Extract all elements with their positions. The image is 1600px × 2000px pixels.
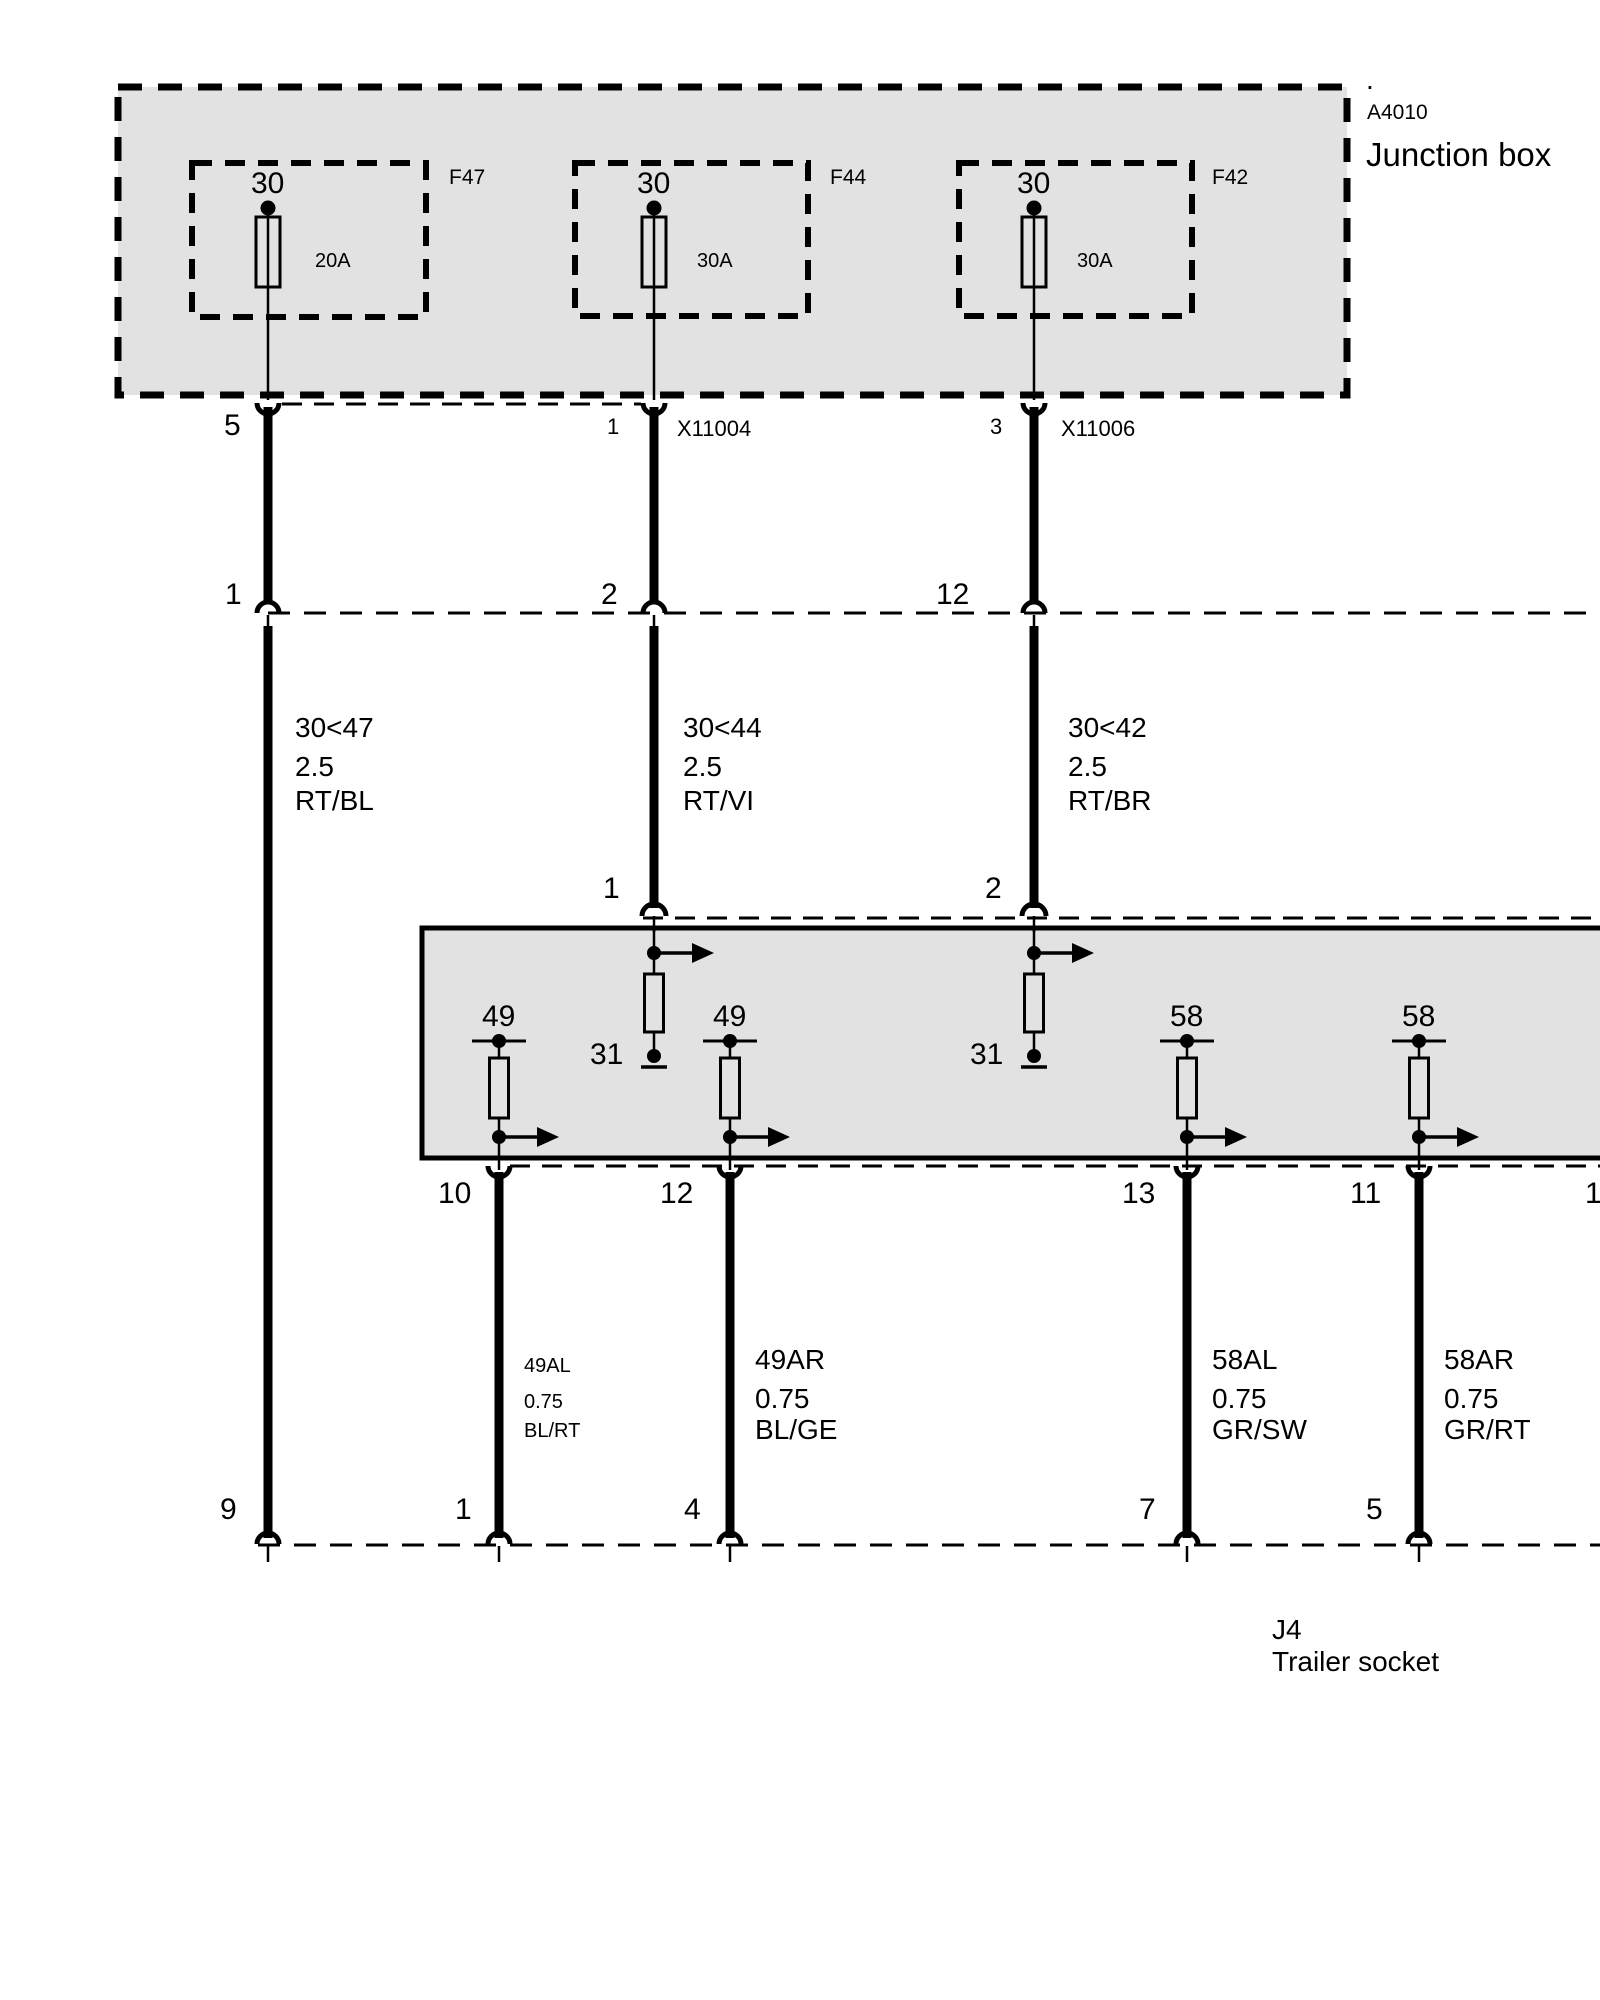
wire-label-gauge-rt-vi: 2.5 <box>683 753 722 781</box>
fuse-f47-code-label: F47 <box>449 167 485 188</box>
socket-pin-label-5: 5 <box>1366 1495 1383 1525</box>
module-input-cup-1 <box>642 904 666 916</box>
wire-label-color-rt-vi: RT/VI <box>683 787 754 815</box>
fuse-f44-code-label: F44 <box>830 167 866 188</box>
module-bottom-connector-row <box>488 1166 1600 1177</box>
mid-cup-2 <box>643 602 665 613</box>
fuse-f44-terminal-dot <box>647 201 662 216</box>
socket-cup-9 <box>257 1533 279 1544</box>
fuse-f44-terminal-label: 30 <box>637 169 670 199</box>
branch2-ground-dot <box>1027 1049 1041 1063</box>
connector-row-mid <box>257 602 1600 626</box>
socket-cup-5 <box>1408 1533 1430 1544</box>
socket-pin-label-1: 1 <box>455 1495 472 1525</box>
wire-label-color-49al: BL/RT <box>524 1421 580 1441</box>
socket-cup-7 <box>1176 1533 1198 1544</box>
module-output-pin-label-11: 11 <box>1350 1179 1381 1209</box>
wiring-diagram-canvas <box>0 0 1600 2000</box>
wire-label-gauge-58ar: 0.75 <box>1444 1385 1499 1413</box>
pin-label-5: 5 <box>224 411 241 441</box>
wire-label-gauge-rt-br: 2.5 <box>1068 753 1107 781</box>
fuse-f42-rating-label: 30A <box>1077 251 1113 271</box>
ground-terminal-label-31b: 31 <box>970 1040 1003 1070</box>
lamp-terminal-label-49r: 49 <box>713 1002 746 1032</box>
fuse-f47-rating-label: 20A <box>315 251 351 271</box>
component-id-label: A4010 <box>1367 102 1428 123</box>
wire-label-color-49ar: BL/GE <box>755 1416 837 1444</box>
mid-pin-label-2: 2 <box>601 580 618 610</box>
socket-pin-label-7: 7 <box>1139 1495 1156 1525</box>
mid-pin-label-12: 12 <box>936 580 969 610</box>
module-output-pin-label-12: 12 <box>660 1179 693 1209</box>
module-input-pin-label-2: 2 <box>985 874 1002 904</box>
wire-label-gauge-49ar: 0.75 <box>755 1385 810 1413</box>
socket-cup-1 <box>488 1533 510 1544</box>
branch1-ground-dot <box>647 1049 661 1063</box>
socket-name-label: Trailer socket <box>1272 1648 1439 1676</box>
fuse-f47-terminal-dot <box>261 201 276 216</box>
component-name-label: Junction box <box>1366 138 1551 171</box>
wire-label-color-58al: GR/SW <box>1212 1416 1307 1444</box>
fuse-f42-terminal-dot <box>1027 201 1042 216</box>
connector-x11004-label: X11004 <box>677 418 751 440</box>
trailer-module <box>422 904 1600 1170</box>
lamp-wires <box>499 1172 1419 1538</box>
wire-label-circuit-rt-bl: 30<47 <box>295 714 374 742</box>
wire-label-circuit-49ar: 49AR <box>755 1346 825 1374</box>
lamp-terminal-label-58l: 58 <box>1170 1002 1203 1032</box>
fuse-f42-code-label: F42 <box>1212 167 1248 188</box>
pin-label-1-top: 1 <box>607 416 619 438</box>
title-dot: . <box>1366 66 1374 94</box>
wire-label-circuit-rt-br: 30<42 <box>1068 714 1147 742</box>
module-output-pin-label-1x: 1 <box>1585 1179 1600 1209</box>
wire-label-color-rt-bl: RT/BL <box>295 787 374 815</box>
wire-label-color-rt-br: RT/BR <box>1068 787 1152 815</box>
module-output-pin-label-13: 13 <box>1122 1179 1155 1209</box>
module-output-pin-label-10: 10 <box>438 1179 471 1209</box>
wire-label-circuit-49al: 49AL <box>524 1356 571 1376</box>
module-input-cup-2 <box>1022 904 1046 916</box>
mid-pin-label-1: 1 <box>225 580 242 610</box>
wire-label-color-58ar: GR/RT <box>1444 1416 1531 1444</box>
fuse-f44-rating-label: 30A <box>697 251 733 271</box>
mid-cup-12 <box>1023 602 1045 613</box>
wire-label-circuit-rt-vi: 30<44 <box>683 714 762 742</box>
wire-label-circuit-58ar: 58AR <box>1444 1346 1514 1374</box>
lamp-terminal-label-58r: 58 <box>1402 1002 1435 1032</box>
junction-box <box>118 87 1347 400</box>
module-input-pin-label-1: 1 <box>603 874 620 904</box>
ground-terminal-label-31a: 31 <box>590 1040 623 1070</box>
pin-label-3: 3 <box>990 416 1002 438</box>
mid-cup-1 <box>257 602 279 613</box>
lamp-terminal-label-49l: 49 <box>482 1002 515 1032</box>
wire-label-gauge-49al: 0.75 <box>524 1392 563 1412</box>
connector-x11006-label: X11006 <box>1061 418 1135 440</box>
socket-id-label: J4 <box>1272 1616 1302 1644</box>
fuse-f42-terminal-label: 30 <box>1017 169 1050 199</box>
fuse-f47-terminal-label: 30 <box>251 169 284 199</box>
wiring-diagram-page: . A4010 Junction box 30 30 30 20A 30A 30… <box>0 0 1600 2000</box>
trailer-socket-row <box>257 1533 1600 1562</box>
socket-pin-label-9: 9 <box>220 1495 237 1525</box>
junction-box-outline <box>118 87 1347 395</box>
wire-label-circuit-58al: 58AL <box>1212 1346 1277 1374</box>
socket-pin-label-4: 4 <box>684 1495 701 1525</box>
socket-cup-4 <box>719 1533 741 1544</box>
wire-label-gauge-rt-bl: 2.5 <box>295 753 334 781</box>
wire-label-gauge-58al: 0.75 <box>1212 1385 1267 1413</box>
